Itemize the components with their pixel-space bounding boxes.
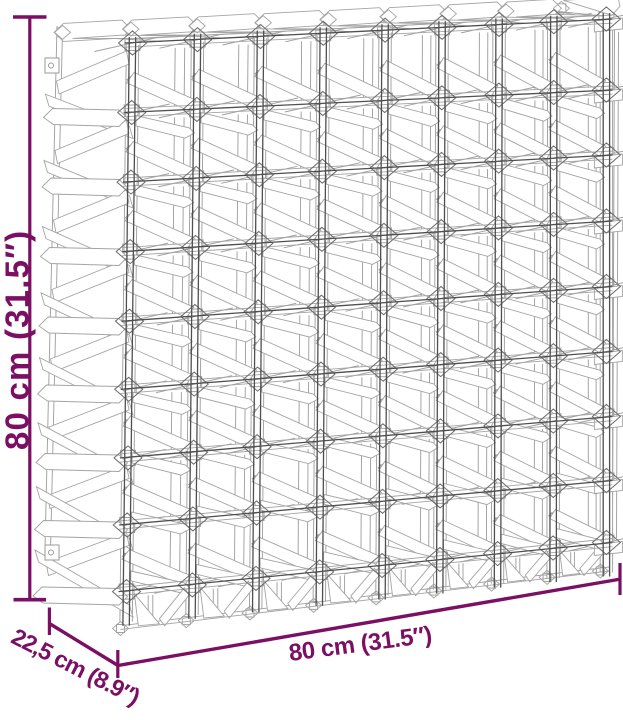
- svg-text:80 cm (31.5″): 80 cm (31.5″): [0, 230, 36, 450]
